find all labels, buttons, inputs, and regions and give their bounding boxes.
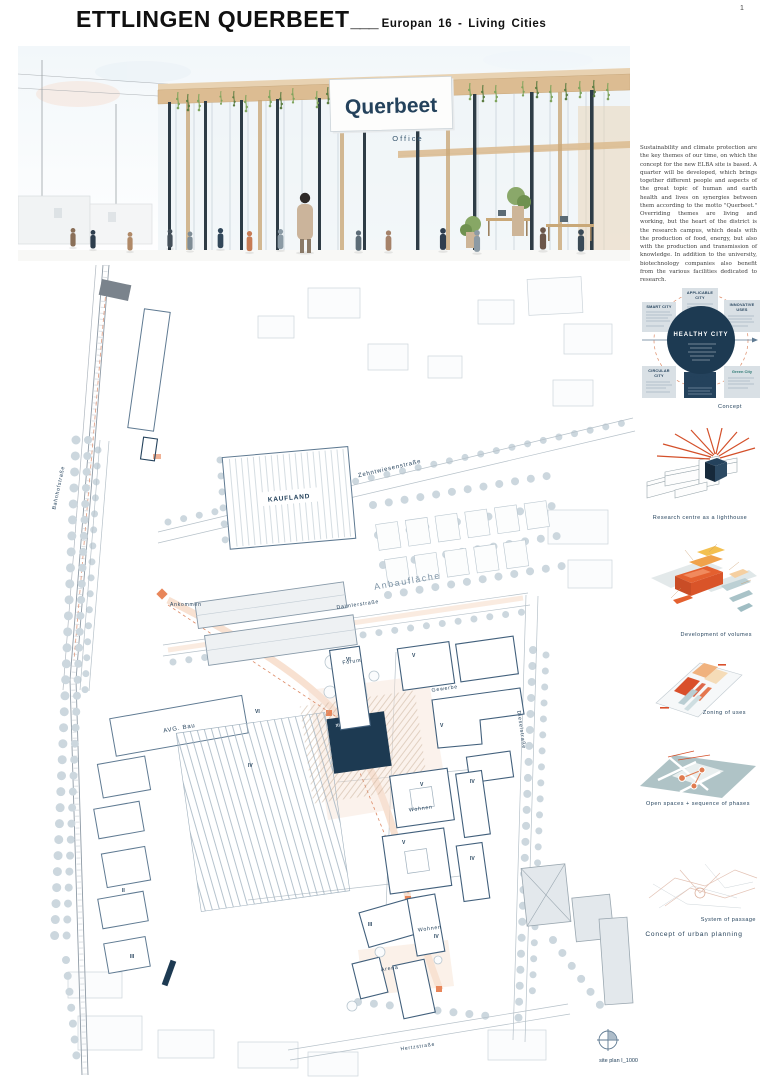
level-10: IV <box>434 934 439 940</box>
box-adaptive-city: ADAPTIVE CITY <box>684 372 716 398</box>
poster-board: 1 ETTLINGEN QUERBEET ___ Europan 16 - Li… <box>0 0 763 1080</box>
level-2: VI <box>255 709 260 715</box>
concept-diagram: SMART CITY APPLICABLE CITY INNOVATIVE US… <box>640 286 762 400</box>
passage-grid <box>653 864 753 908</box>
label-dieselstrasse: Dieselstraße <box>515 710 526 749</box>
level-5: IV <box>248 763 253 769</box>
label-ankommen: Ankommen <box>170 602 202 608</box>
page-number: 1 <box>740 5 744 12</box>
north-arrow <box>597 1029 619 1051</box>
teal-slab-2 <box>729 590 753 602</box>
kaufland-building: KAUFLAND <box>222 447 356 550</box>
railway <box>63 265 109 1075</box>
box-green-city: Green City <box>724 366 760 398</box>
lighthouse-diagram <box>645 428 757 514</box>
passage-routes <box>649 870 757 906</box>
level-7: IV <box>470 779 475 785</box>
interior-wall <box>578 106 630 251</box>
yellow-slab <box>697 546 725 556</box>
research-cube <box>705 458 727 482</box>
plan-caption: site plan I_1000 <box>599 1058 638 1064</box>
site-plan: KAUFLAND AVG. Bau <box>8 260 638 1078</box>
east-existing <box>521 864 633 1005</box>
title-rule: ___ <box>351 11 378 32</box>
box-innovative-label-1: INNOVATIVE <box>730 303 755 307</box>
level-11: III <box>368 922 373 928</box>
caption-concept: Concept <box>640 404 742 410</box>
header: ETTLINGEN QUERBEET ___ Europan 16 - Livi… <box>76 6 546 33</box>
caption-passage: System of passage <box>660 917 756 923</box>
level-13: III <box>130 954 135 960</box>
wohnen-north <box>382 768 490 901</box>
healthy-city-circle <box>667 306 735 374</box>
teal-slab-3 <box>737 603 753 612</box>
querbeet-building: Querbeet Office <box>158 68 630 252</box>
hero-rendering: Querbeet Office <box>18 46 630 261</box>
box-green-label: Green City <box>732 369 753 374</box>
level-0: VI <box>346 657 351 663</box>
box-adaptive-label-2: CITY <box>695 380 705 384</box>
level-9: IV <box>470 856 475 862</box>
caption-lighthouse: Research centre as a lighthouse <box>638 515 762 521</box>
caption-open-spaces: Open spaces + sequence of phases <box>634 801 762 807</box>
red-bar <box>673 595 693 604</box>
box-smart-label: SMART CITY <box>646 305 671 309</box>
box-circular-label-2: CITY <box>654 374 664 378</box>
box-applicable-label-1: APPLICABLE <box>687 291 714 295</box>
open-spaces-diagram <box>638 750 760 802</box>
caption-zoning: Zoning of uses <box>662 710 746 716</box>
box-applicable-label-2: CITY <box>695 296 705 300</box>
volumes-diagram <box>645 540 757 630</box>
intro-paragraph: Sustainability and climate protection ar… <box>640 144 757 284</box>
healthy-city-label: HEALTHY CITY <box>673 332 728 338</box>
sign-title: Querbeet <box>345 94 438 119</box>
box-circular-label-1: CIRCULAR <box>648 369 669 373</box>
caption-volumes: Development of volumes <box>640 632 752 638</box>
level-12: II <box>122 888 125 894</box>
box-innovative-label-2: USES <box>736 308 747 312</box>
rail-strip-building <box>128 309 170 461</box>
sidebar-section-heading: Concept of urban planning <box>628 931 760 938</box>
page-title: ETTLINGEN QUERBEET <box>76 6 350 33</box>
sign-subtitle: Office <box>392 134 423 143</box>
querbeet-sign: Querbeet <box>329 76 454 133</box>
box-circular-city: CIRCULAR CITY <box>642 366 676 398</box>
box-adaptive-label-1: ADAPTIVE <box>690 375 711 379</box>
zoning-diagram <box>648 655 748 727</box>
passage-diagram <box>645 858 760 914</box>
left-housing <box>94 756 151 973</box>
label-bahnhofstrasse: Bahnhofstraße <box>51 465 66 510</box>
existing-dark-building <box>99 279 132 301</box>
page-subtitle: Europan 16 - Living Cities <box>382 18 547 30</box>
light-rays <box>657 428 755 459</box>
label-hertzstrasse: Hertzstraße <box>400 1042 435 1053</box>
